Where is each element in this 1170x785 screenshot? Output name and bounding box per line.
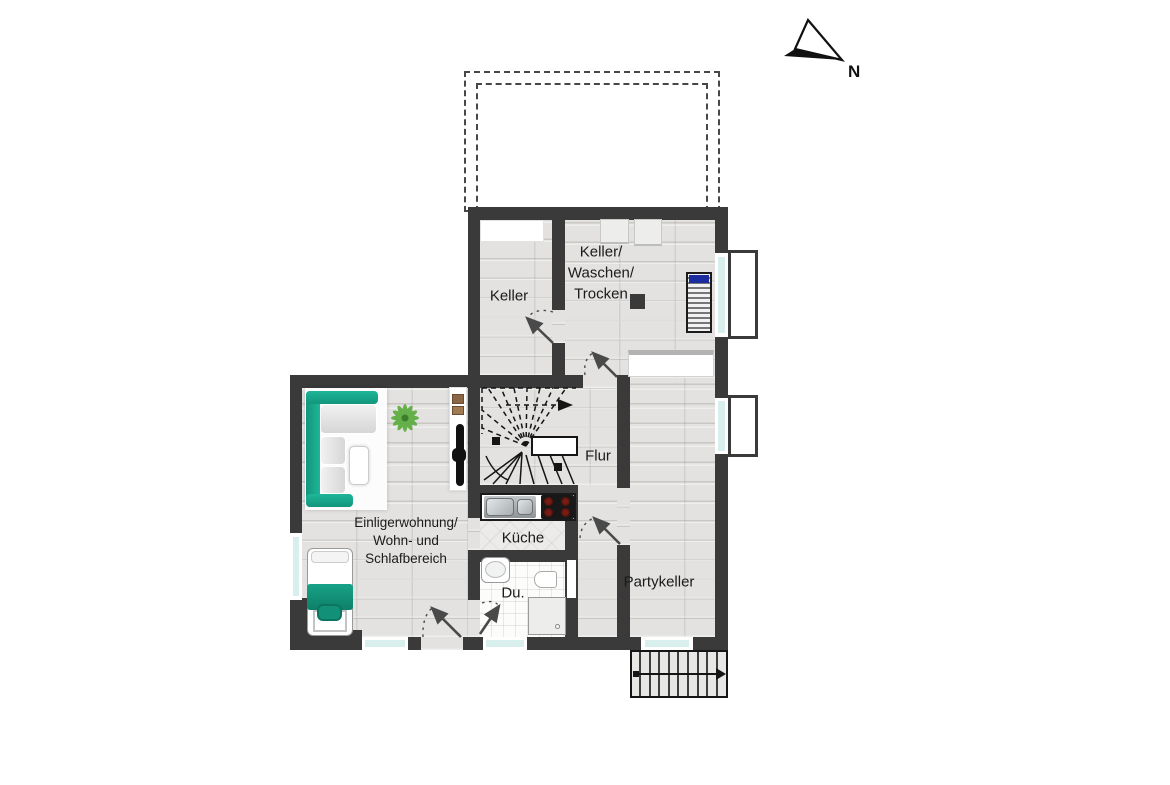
window-apartment-south-glass — [365, 640, 405, 647]
room-flur-floor — [480, 388, 617, 485]
room-label-du: Du. — [501, 585, 524, 602]
room-label-keller: Keller — [490, 288, 528, 305]
drying-rack — [686, 272, 712, 333]
room-partykeller-floor — [630, 378, 715, 637]
cooktop-burner-4 — [561, 508, 570, 517]
room-label-laundry-line1: Keller/ — [568, 242, 634, 263]
sofa-cushion-mid — [320, 436, 346, 465]
bed-headboard — [311, 551, 349, 563]
sofa-back-vertical — [306, 391, 320, 507]
cooktop-burner-1 — [544, 497, 553, 506]
sofa-arm-bottom — [306, 494, 353, 507]
cooktop-burner-3 — [544, 508, 553, 517]
passage-apartment-kueche — [468, 518, 480, 550]
room-label-flur: Flur — [585, 448, 611, 465]
cooktop-burner-2 — [561, 497, 570, 506]
du-washbasin-bowl — [485, 561, 506, 578]
light-shaft-east-lower — [728, 395, 758, 457]
wall-partykeller-lower — [617, 545, 630, 637]
room-label-apartment: Einligerwohnung/ Wohn- und Schlafbereich — [354, 514, 458, 568]
north-label: N — [848, 62, 860, 81]
window-partykeller-south-glass — [645, 640, 689, 647]
room-label-laundry: Keller/ Waschen/ Trocken — [568, 242, 634, 305]
sofa-cushion-top — [320, 404, 377, 434]
room-label-apartment-line1: Einligerwohnung/ — [354, 514, 458, 532]
door-opening-keller-laundry — [552, 310, 565, 343]
room-label-partykeller: Partykeller — [624, 574, 695, 591]
door-opening-apartment-entry — [421, 637, 463, 650]
shelf-item-books-1 — [452, 394, 464, 404]
window-partykeller-east-glass — [718, 401, 725, 451]
bed-cushion — [317, 604, 342, 621]
coffee-table — [349, 446, 369, 485]
du-shower-drain — [555, 624, 560, 629]
window-apartment-west-glass — [293, 537, 299, 596]
exterior-staircase — [630, 650, 728, 698]
door-opening-apartment-du — [468, 600, 480, 637]
floorplan-canvas: N — [0, 0, 1170, 785]
door-opening-laundry-flur — [583, 375, 617, 388]
room-label-laundry-line3: Trocken — [568, 284, 634, 305]
kitchen-sink-basin-large — [486, 498, 514, 516]
kitchen-sink-basin-small — [517, 499, 533, 515]
sofa-cushion-low — [320, 466, 346, 494]
tv-center-knob — [452, 448, 466, 462]
window-laundry-east-glass — [718, 257, 725, 333]
door-gap-du-corridor — [567, 560, 576, 598]
sofa-back-horizontal — [306, 391, 378, 404]
room-label-laundry-line2: Waschen/ — [568, 263, 634, 284]
room-label-kueche: Küche — [502, 530, 545, 547]
wall-keller-divider-upper — [552, 220, 565, 310]
shelf-item-books-2 — [452, 406, 464, 415]
wall-partykeller-upper — [617, 388, 630, 488]
workbench — [628, 350, 714, 377]
wall-flur-top-left — [468, 375, 583, 388]
drying-rack-blue-band — [689, 275, 709, 283]
door-opening-partykeller — [617, 488, 630, 545]
du-shower-tray — [528, 597, 566, 635]
terrace-outline-inner — [476, 83, 708, 212]
laundry-appliance-2 — [634, 219, 662, 246]
room-label-apartment-line2: Wohn- und — [354, 532, 458, 550]
window-du-south-glass — [486, 640, 524, 647]
keller-niche — [480, 220, 544, 242]
du-toilet — [534, 571, 557, 588]
north-arrow-icon: N — [778, 14, 878, 86]
light-shaft-east-upper — [728, 250, 758, 339]
room-label-apartment-line3: Schlafbereich — [354, 550, 458, 568]
laundry-appliance-1 — [600, 219, 629, 244]
corridor-floor — [578, 485, 617, 637]
